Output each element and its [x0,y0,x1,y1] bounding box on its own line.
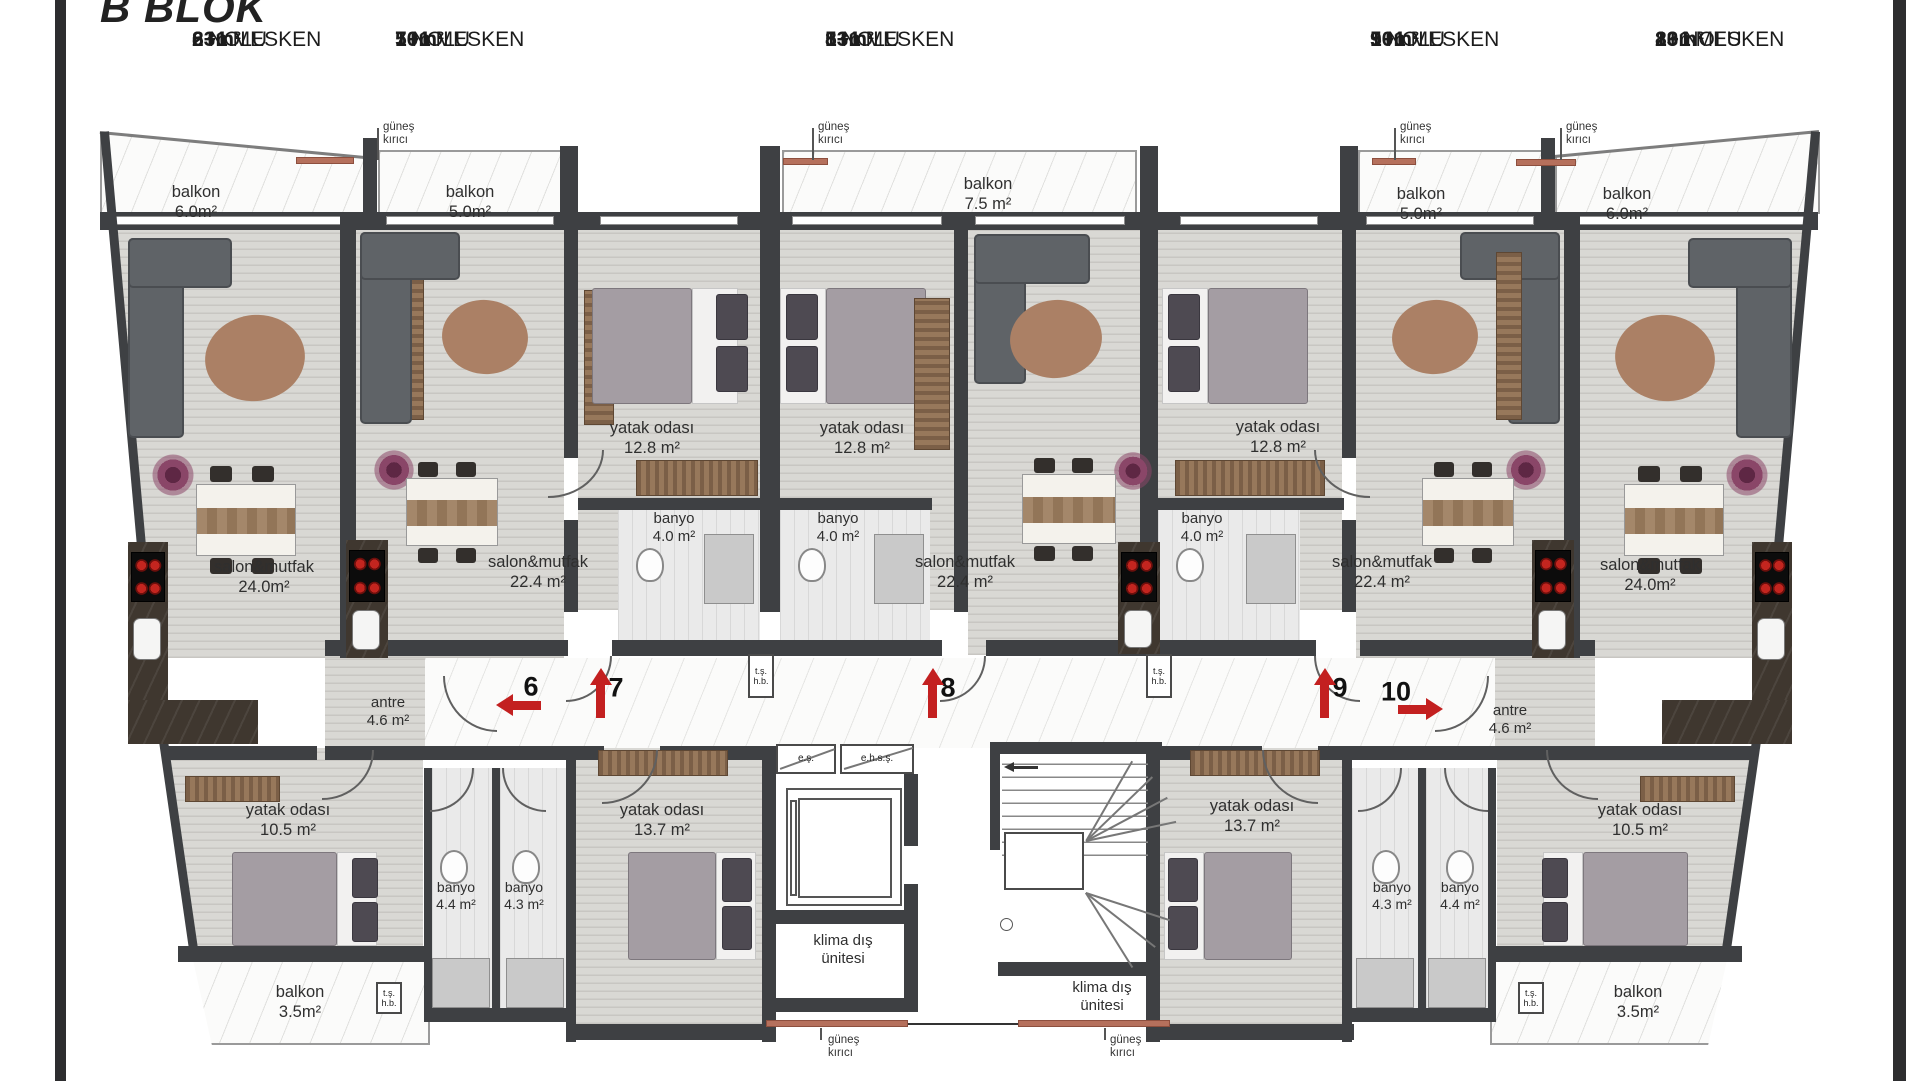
pillow [1542,858,1568,898]
room-area: 4.3 m² [504,896,544,913]
tv-unit [1496,252,1522,420]
window [792,216,942,225]
elevator-counterweight [790,800,797,896]
chair [252,466,274,482]
unit-marker-arrowhead-7 [590,668,612,685]
shaft-label-ts: t.ş. [1523,988,1538,998]
room-name: yatak odası [1236,417,1320,437]
floor-plan-page: t.ş.h.b. t.ş.h.b. t.ş.h.b. t.ş.h.b. e.ş.… [0,0,1920,1081]
shaft-label: t.ş.h.b. [753,666,768,686]
window [112,216,352,225]
room-area: 4.0 m² [817,528,860,546]
gunes-line: güneş [818,121,849,134]
es-label: e.ş. [798,754,814,764]
gunes-line: güneş [383,121,414,134]
room-label-balkon-9: balkon5.0m² [1397,184,1446,224]
shaft-label-ts: t.ş. [753,666,768,676]
unit-marker-arrowhead-10 [1426,698,1443,720]
room-name: banyo [654,510,695,528]
sofa [360,232,460,280]
stove [131,552,165,602]
unit-area: 83m² [1655,28,1704,51]
sink [1124,610,1152,648]
room-label-salon-10: salon&mutfak24.0m² [1600,555,1700,595]
chair [1034,546,1055,561]
shaft-label: t.ş.h.b. [1151,666,1166,686]
room-area: 22.4 m² [937,572,993,592]
label-gunes-kirici: güneşkırıcı [1400,121,1431,146]
wall-living7-bedroomA [564,212,578,458]
room-name: yatak odası [1598,800,1682,820]
room-area: 4.6 m² [367,712,410,730]
unit-area-line: 50m² [1370,26,1424,53]
bed [592,288,692,404]
wall-bedroom13R-right [1342,746,1352,1042]
stove [1121,552,1157,602]
klima-line: ünitesi [821,950,864,968]
gunes-line: güneş [828,1034,859,1047]
unit-area: 50m² [1370,28,1419,51]
room-name: balkon [276,982,325,1002]
sun-breaker-bar [1516,159,1576,166]
bed [1583,852,1688,946]
wall-balcony-divider [1541,138,1555,214]
wall-elevator [904,774,918,846]
room-area: 3.5m² [279,1002,321,1022]
chair [1072,458,1093,473]
wall-banyo-left-divider [492,768,500,1012]
shaft-label-hb: h.b. [1151,676,1166,686]
shaft-label-ts: t.ş. [1151,666,1166,676]
wall-banyoC-top [1158,498,1344,510]
room-label-balkon-10: balkon6.0m² [1603,184,1652,224]
unit-marker-arrow-9 [1320,684,1329,718]
shaft-label-hb: h.b. [1523,998,1538,1008]
room-area: 13.7 m² [1224,816,1280,836]
unit-area-line: 53m² [825,26,879,53]
room-label-balkon-7: balkon5.0m² [446,182,495,222]
page-border-right [1893,0,1906,1081]
wall-bedroom13L-left [566,746,576,1042]
stove [349,550,385,602]
label-gunes-kirici: güneşkırıcı [818,121,849,146]
wall-banyoB-top [780,498,932,510]
stair-direction-line [1012,766,1038,769]
room-label-banyo-43-left: banyo4.3 m² [504,879,544,913]
klima-line: klima dış [813,932,872,950]
dining-table [1422,478,1514,546]
room-label-banyo-c: banyo4.0 m² [1181,510,1224,546]
stove [1755,552,1789,602]
room-label-salon-9: salon&mutfak22.4 m² [1332,552,1432,592]
gunes-line: güneş [1400,121,1431,134]
room-name: banyo [1182,510,1223,528]
plant [1112,450,1154,492]
shaft-label-ts: t.ş. [381,988,396,998]
room-area: 4.4 m² [436,896,476,913]
chair [1638,466,1660,482]
label-klima-right: klima dışünitesi [1072,979,1131,1015]
pillow [786,294,818,340]
room-area: 4.6 m² [1489,720,1532,738]
leader-line [1394,128,1396,160]
wall-elevator [762,910,918,924]
room-name: yatak odası [246,800,330,820]
klima-line: ünitesi [1080,997,1123,1015]
wall-core-right [1146,746,1160,1042]
room-area: 10.5 m² [260,820,316,840]
room-area: 24.0m² [1624,575,1675,595]
wall-bedroom10R-bottom [1494,946,1742,962]
pillow [1168,858,1198,902]
unit-marker-arrow-10 [1398,705,1426,714]
wall-banyo-right-divider [1418,768,1426,1012]
room-label-banyo-a: banyo4.0 m² [653,510,696,546]
kitchen-counter [1662,700,1792,744]
room-name: salon&mutfak [1600,555,1700,575]
wall-stairs [990,742,1000,850]
room-area: 22.4 m² [510,572,566,592]
room-name: banyo [505,879,543,896]
table-runner [1423,500,1513,526]
shower [1246,534,1296,604]
room-name: balkon [172,182,221,202]
wall-bedroom13R-bottom [1146,1024,1354,1040]
sun-breaker-bar [296,157,354,164]
sun-breaker-bar [783,158,828,165]
table-runner [1625,508,1723,534]
pillow [352,858,378,898]
room-label-balkon-35-right: balkon3.5m² [1614,982,1663,1022]
chair [1072,546,1093,561]
page-border-left [55,0,66,1081]
room-name: banyo [1441,879,1479,896]
wall-balcony-pier [560,146,578,214]
leader-line [812,128,814,160]
unit-marker-arrowhead-8 [922,668,944,685]
sink [352,610,380,650]
bed [1204,852,1292,960]
room-area: 5.0m² [1400,204,1442,224]
gunes-line: kırıcı [1400,134,1431,147]
pillow [722,906,752,950]
wardrobe [1175,460,1325,496]
room-label-banyo-43-right: banyo4.3 m² [1372,879,1412,913]
sun-breaker-bar [1018,1020,1170,1027]
leader-line [377,128,379,160]
room-label-antre-right: antre4.6 m² [1489,702,1532,738]
unit-area-line: 50m² [395,26,449,53]
room-label-balkon-35-left: balkon3.5m² [276,982,325,1022]
wall-stairs [998,962,1160,976]
wall-corridor-bottom [1352,746,1488,760]
shower [432,958,490,1008]
room-area: 12.8 m² [1250,437,1306,457]
bed [1208,288,1308,404]
wardrobe [185,776,280,802]
gunes-line: kırıcı [828,1047,859,1060]
room-area: 22.4 m² [1354,572,1410,592]
chair [418,462,438,477]
room-label-yatak-b: yatak odası12.8 m² [820,418,904,458]
elevator-shaft-label: e.h.s.ş. [861,754,893,764]
shower [1356,958,1414,1008]
room-label-banyo-44-right: banyo4.4 m² [1440,879,1480,913]
room-name: balkon [1614,982,1663,1002]
shaft-label: t.ş.h.b. [1523,988,1538,1008]
bed [628,852,716,960]
chair [418,548,438,563]
room-name: salon&mutfak [1332,552,1432,572]
dining-table [406,478,498,546]
pillow [716,294,748,340]
room-name: balkon [964,174,1013,194]
room-label-yatak-10-left: yatak odası10.5 m² [246,800,330,840]
toilet [636,548,664,582]
gunes-line: güneş [1110,1034,1141,1047]
chair [1680,466,1702,482]
room-label-yatak-13-right: yatak odası13.7 m² [1210,796,1294,836]
elevator-shaft-label: e.ş. [798,754,814,764]
wall-bedroom10L-bottom [178,946,426,962]
window [975,216,1125,225]
sink [133,618,161,660]
bed [232,852,337,946]
dining-table [1022,474,1116,544]
shower [704,534,754,604]
room-name: banyo [437,879,475,896]
room-area: 6.0m² [1606,204,1648,224]
wardrobe [914,298,950,450]
chair [1034,458,1055,473]
unit-marker-arrowhead-6 [496,694,513,716]
unit-marker-arrowhead-9 [1314,668,1336,685]
unit-area-line: 83m² [192,26,246,53]
klima-line: klima dış [1072,979,1131,997]
shaft-label-hb: h.b. [753,676,768,686]
gunes-line: güneş [1566,121,1597,134]
window [600,216,738,225]
wall-corridor-bottom [425,746,568,760]
wall-balcony-divider [363,138,377,214]
wall-bedroomC-living9 [1342,212,1356,458]
room-label-antre-left: antre4.6 m² [367,694,410,730]
room-name: antre [1493,702,1527,720]
room-label-balkon-6: balkon6.0m² [172,182,221,222]
room-label-salon-7: salon&mutfak22.4 m² [488,552,588,592]
label-gunes-kirici: güneşkırıcı [828,1034,859,1059]
pillow [1168,346,1200,392]
room-area: 12.8 m² [834,438,890,458]
stair-handrail-circle [1000,918,1013,931]
toilet [1176,548,1204,582]
gunes-line: kırıcı [1110,1047,1141,1060]
room-label-yatak-13-left: yatak odası13.7 m² [620,800,704,840]
room-label-salon-8: salon&mutfak22.4 m² [915,552,1015,592]
wardrobe [636,460,758,496]
chair [210,466,232,482]
wall-corridor-bottom [1318,746,1342,760]
table-runner [197,508,295,534]
room-label-salon-6: salon&mutfak24.0m² [214,557,314,597]
room-name: balkon [446,182,495,202]
unit-area-line: 83m² [1655,26,1709,53]
plant [1724,452,1770,498]
label-klima-left: klima dışünitesi [813,932,872,968]
room-name: banyo [818,510,859,528]
wall-corridor-top [420,640,568,656]
room-name: yatak odası [620,800,704,820]
label-gunes-kirici: güneşkırıcı [1566,121,1597,146]
window [1180,216,1318,225]
kitchen-counter [128,700,258,744]
label-gunes-kirici: güneşkırıcı [1110,1034,1141,1059]
unit-area: 50m² [395,28,444,51]
toilet [798,548,826,582]
gunes-line: kırıcı [1566,134,1597,147]
shower [506,958,564,1008]
dining-table [1624,484,1724,556]
sofa [1688,238,1792,288]
wall-banyoL-bottom [424,1008,576,1022]
room-area: 3.5m² [1617,1002,1659,1022]
dining-table [196,484,296,556]
room-name: banyo [1373,879,1411,896]
wall-banyoA-top [578,498,764,510]
stair-winder-line [1085,892,1133,967]
wall-corridor-bottom [1595,746,1753,760]
unit-marker-arrow-7 [596,684,605,718]
pillow [722,858,752,902]
leader-line [820,1028,822,1040]
wall-stairs [998,742,1162,754]
ehss-label: e.h.s.ş. [861,754,893,764]
elevator-car [798,798,892,898]
label-gunes-kirici: güneşkırıcı [383,121,414,146]
shower [1428,958,1486,1008]
room-area: 10.5 m² [1612,820,1668,840]
shaft-label-hb: h.b. [381,998,396,1008]
wall-corridor-bottom [165,746,317,760]
balcony-8 [782,150,1137,214]
wardrobe [1640,776,1735,802]
table-runner [1023,497,1115,523]
wall-balcony-pier [1340,146,1358,214]
chair [1472,548,1492,563]
room-name: antre [371,694,405,712]
wall-klima-left [762,998,918,1012]
unit-area: 83m² [192,28,241,51]
room-label-banyo-44-left: banyo4.4 m² [436,879,476,913]
room-area: 4.0 m² [1181,528,1224,546]
room-area: 12.8 m² [624,438,680,458]
room-name: yatak odası [1210,796,1294,816]
pillow [352,902,378,942]
room-label-yatak-a: yatak odası12.8 m² [610,418,694,458]
room-name: salon&mutfak [488,552,588,572]
room-area: 5.0m² [449,202,491,222]
pillow [1168,906,1198,950]
wall-bedroomA-B [760,146,780,612]
leader-line [1104,1028,1106,1040]
wall-banyoR-bottom [1344,1008,1496,1022]
chair [456,462,476,477]
unit-marker-number-6: 6 [523,672,538,703]
pillow [1542,902,1568,942]
gunes-line: kırıcı [818,134,849,147]
room-area: 24.0m² [238,577,289,597]
room-name: balkon [1603,184,1652,204]
stove [1535,550,1571,602]
room-label-balkon-8: balkon7.5 m² [964,174,1013,214]
stair-landing [1004,832,1084,890]
unit-marker-arrow-8 [928,684,937,718]
window [1366,216,1534,225]
room-label-yatak-c: yatak odası12.8 m² [1236,417,1320,457]
wall-corridor-top [1360,640,1498,656]
room-name: salon&mutfak [915,552,1015,572]
chair [1434,548,1454,563]
gunes-line: kırıcı [383,134,414,147]
room-label-yatak-10-right: yatak odası10.5 m² [1598,800,1682,840]
room-name: yatak odası [820,418,904,438]
room-label-banyo-b: banyo4.0 m² [817,510,860,546]
room-area: 7.5 m² [965,194,1012,214]
chair [1472,462,1492,477]
room-area: 6.0m² [175,202,217,222]
wall-bedroom13L-bottom [566,1024,774,1040]
unit-marker-number-10: 10 [1381,677,1411,708]
sink [1757,618,1785,660]
room-name: salon&mutfak [214,557,314,577]
wall-banyo-right-outer [1488,768,1496,1012]
shaft-label: t.ş.h.b. [381,988,396,1008]
room-area: 4.4 m² [1440,896,1480,913]
sink [1538,610,1566,650]
room-area: 4.0 m² [653,528,696,546]
room-name: balkon [1397,184,1446,204]
unit-marker-arrow-6 [513,701,541,710]
pillow [716,346,748,392]
room-area: 13.7 m² [634,820,690,840]
pillow [1168,294,1200,340]
room-name: yatak odası [610,418,694,438]
sun-breaker-bar [766,1020,908,1027]
room-area: 4.3 m² [1372,896,1412,913]
chair [1434,462,1454,477]
balcony-edge-line [908,1023,1018,1025]
wall-corridor-top [612,640,942,656]
sofa [128,238,232,288]
plant [150,452,196,498]
stair-direction-arrow [1004,762,1014,772]
leader-line [1560,128,1562,160]
unit-area: 53m² [825,28,874,51]
chair [456,548,476,563]
pillow [786,346,818,392]
bed [826,288,926,404]
table-runner [407,500,497,526]
sofa [974,234,1090,284]
